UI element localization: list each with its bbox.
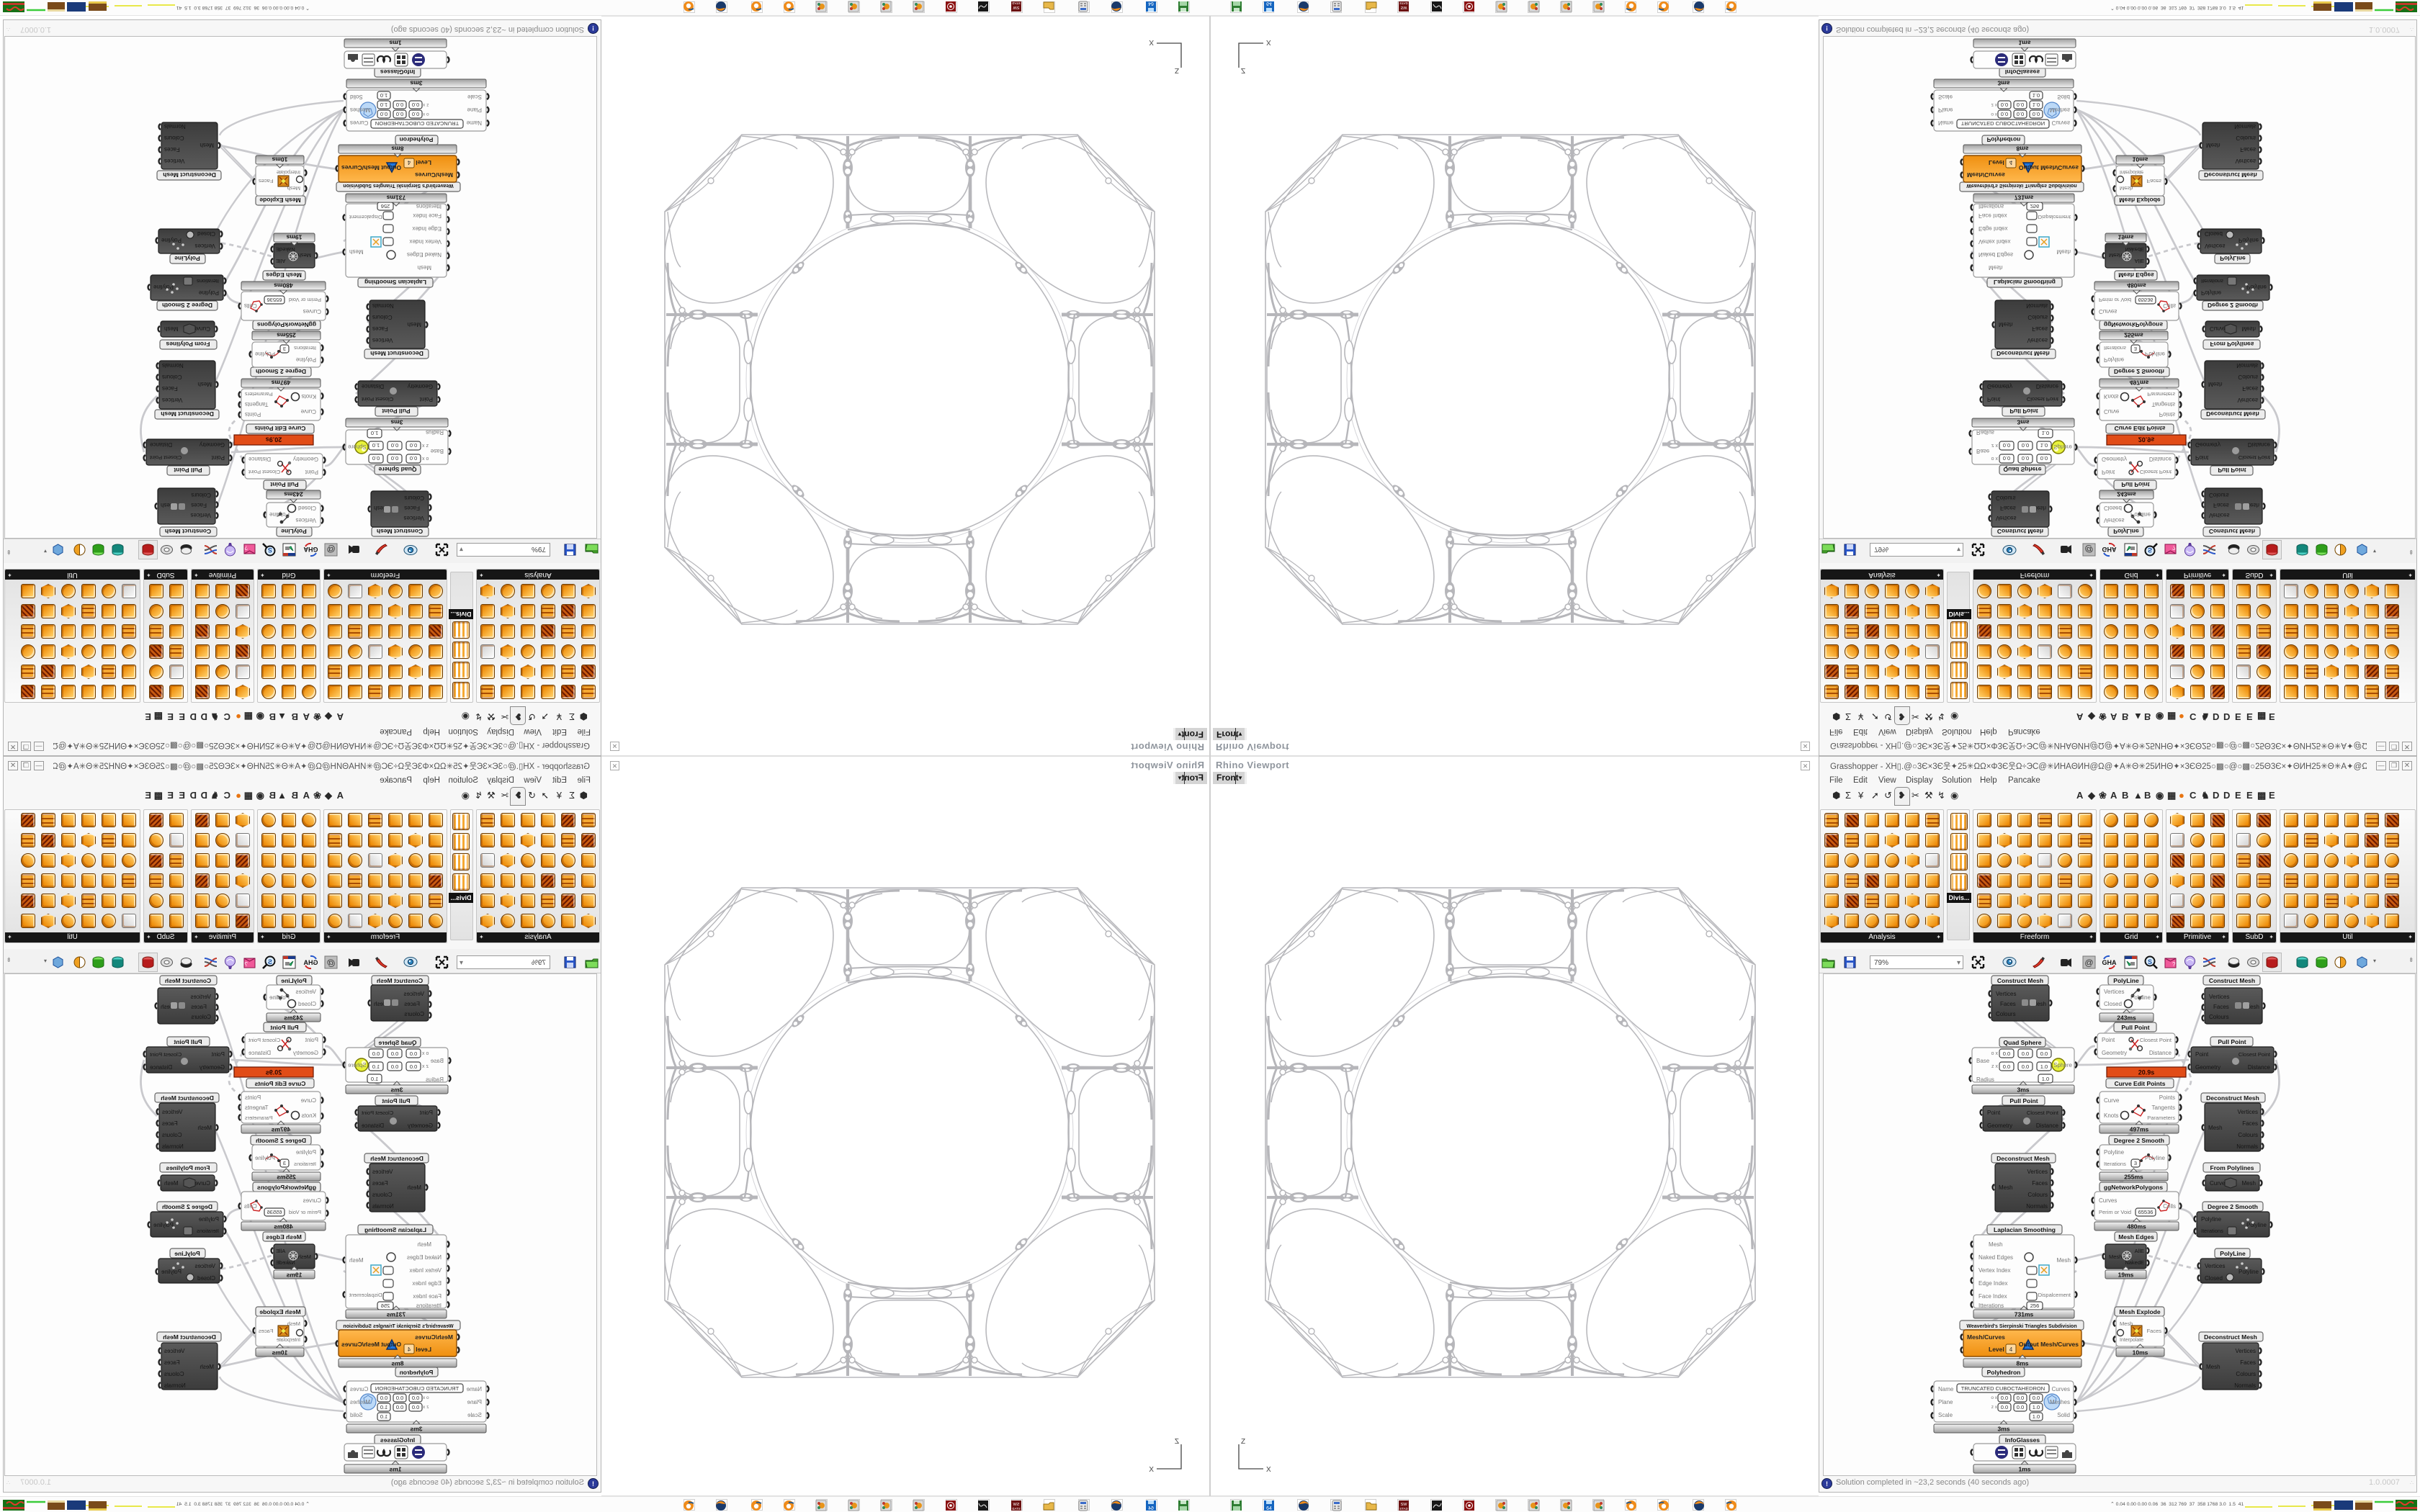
svg-text:Distance: Distance [361,1122,384,1129]
svg-text:Mesh/Curves: Mesh/Curves [415,1333,453,1341]
svg-text:0.0: 0.0 [412,102,419,108]
svg-text:4: 4 [407,1346,411,1353]
svg-text:Mesh: Mesh [2109,1254,2122,1260]
svg-text:Z: Z [1241,1438,1245,1446]
svg-text:Distance: Distance [361,383,384,390]
svg-text:@: @ [326,544,335,554]
svg-text:0.0: 0.0 [2003,1063,2010,1070]
svg-text:243ms: 243ms [284,491,303,498]
svg-text:Solid: Solid [2057,94,2070,100]
svg-text:Iterations: Iterations [2104,1161,2126,1167]
svg-text:Faces: Faces [2032,1180,2048,1187]
svg-text:Point: Point [419,1110,433,1116]
svg-text:Faces: Faces [2242,385,2258,392]
svg-text:NakedE: NakedE [276,246,295,253]
svg-text:Laplacian Smoothing: Laplacian Smoothing [1994,1226,2056,1233]
svg-text:Faces: Faces [2240,146,2256,153]
svg-text:!: ! [592,24,594,32]
svg-text:Mesh/Curves: Mesh/Curves [1967,171,2005,179]
svg-text:Colours: Colours [2209,492,2229,498]
svg-text:8ms: 8ms [2016,145,2028,153]
svg-text:Vertices: Vertices [2238,1109,2258,1115]
svg-text:Geometry: Geometry [1987,383,2012,390]
svg-text:256: 256 [2030,203,2040,210]
svg-text:Pull Point: Pull Point [270,1024,298,1031]
svg-text:Construct Mesh: Construct Mesh [2209,977,2255,984]
svg-text:Faces: Faces [2147,178,2162,184]
svg-text:8ms: 8ms [2016,1360,2028,1367]
svg-text:Dispalcement: Dispalcement [2038,214,2071,220]
svg-text:PolyLine: PolyLine [2113,528,2139,535]
svg-text:Vertices: Vertices [2209,512,2229,518]
svg-text:Construct Mesh: Construct Mesh [2209,528,2255,535]
svg-text:Normals: Normals [2026,302,2048,309]
svg-text:0.0: 0.0 [2001,1395,2008,1401]
svg-text:0.0: 0.0 [396,102,403,108]
svg-text:0.0: 0.0 [2001,111,2008,117]
svg-text:Distance: Distance [2149,456,2172,462]
svg-text:Naked Edges: Naked Edges [1978,251,2013,258]
svg-text:0.0: 0.0 [380,1395,387,1401]
svg-text:Geometry: Geometry [2102,1050,2127,1056]
svg-text:Polyline: Polyline [254,351,275,357]
svg-text:0.0: 0.0 [372,455,380,462]
svg-text:Pull Point: Pull Point [270,481,298,488]
svg-text:Curves: Curves [303,308,321,315]
svg-text:497ms: 497ms [271,1126,290,1133]
svg-text:Mesh: Mesh [1989,264,2003,271]
svg-text:Polyhedron: Polyhedron [400,136,434,143]
svg-text:Polyline: Polyline [2238,237,2259,243]
svg-text:z x: z x [422,1405,429,1410]
svg-text:Cells: Cells [244,302,257,309]
svg-text:Name: Name [466,120,482,126]
svg-text:Vertices: Vertices [2236,158,2256,164]
svg-text:0.0: 0.0 [391,442,398,449]
svg-text:Distance: Distance [248,1050,271,1056]
svg-text:Output Mesh/Curves: Output Mesh/Curves [341,1341,401,1348]
svg-text:Mesh: Mesh [164,1180,179,1187]
svg-text:Geometry: Geometry [293,456,318,462]
svg-text:Degree 2 Smooth: Degree 2 Smooth [162,302,212,309]
svg-text:20.9s: 20.9s [2138,436,2155,444]
svg-text:ggNetworkPolygons: ggNetworkPolygons [257,1184,316,1191]
svg-text:@: @ [2084,544,2093,554]
svg-text:Closed: Closed [2104,1001,2122,1007]
svg-text:Base: Base [1976,448,1990,454]
svg-text:Colours: Colours [164,135,184,141]
svg-text:Mesh: Mesh [298,252,311,258]
svg-text:1.0: 1.0 [380,1404,387,1410]
svg-text:0.0: 0.0 [2033,111,2040,117]
svg-text:64: 64 [1148,1,1154,6]
svg-text:Cells: Cells [2163,1203,2176,1210]
svg-text:Tangents: Tangents [245,1104,268,1111]
svg-text:Interpolate: Interpolate [277,1338,300,1343]
svg-text:1.0: 1.0 [2033,1404,2040,1410]
svg-text:Dispalcement: Dispalcement [349,1292,382,1298]
svg-text:Colours: Colours [162,374,182,380]
svg-text:Mesh: Mesh [1989,1241,2003,1248]
svg-text:Faces: Faces [162,385,178,392]
svg-text:Mesh: Mesh [349,1257,364,1264]
svg-text:3: 3 [2134,1160,2137,1166]
svg-text:!: ! [1826,1480,1828,1488]
svg-text:Faces: Faces [191,502,207,508]
svg-text:Construct Mesh: Construct Mesh [165,977,211,984]
svg-text:Polyline: Polyline [2130,511,2151,518]
svg-text:Mesh: Mesh [2206,142,2220,148]
svg-text:InfoGlasses: InfoGlasses [2005,1436,2040,1444]
svg-text:Polyhedron: Polyhedron [400,1369,434,1376]
svg-text:Closest Point: Closest Point [361,396,393,402]
svg-text:Mesh: Mesh [2241,1180,2256,1187]
svg-text:Pull Point: Pull Point [2121,481,2149,488]
svg-text:Curve: Curve [2104,408,2120,415]
svg-text:Laplacian Smoothing: Laplacian Smoothing [364,1226,426,1233]
svg-text:4: 4 [2009,159,2013,166]
svg-text:Colours: Colours [2238,1132,2258,1138]
svg-text:Normals: Normals [2236,1143,2258,1150]
svg-text:Closed: Closed [298,505,316,511]
svg-text:Deconstruct Mesh: Deconstruct Mesh [1996,1155,2050,1162]
svg-text:X: X [1149,1466,1154,1474]
svg-text:3: 3 [2134,346,2137,352]
svg-text:From Polylines: From Polylines [166,341,210,348]
svg-text:1ms: 1ms [389,40,401,47]
svg-text:Iterations: Iterations [2104,345,2126,351]
svg-text:Curves: Curves [2052,1386,2070,1392]
svg-text:z x: z x [422,102,429,107]
svg-text:Polyline: Polyline [2246,1222,2267,1228]
svg-text:Mesh Edges: Mesh Edges [2118,1233,2154,1241]
svg-text:STAD: STAD [1399,1,1408,5]
svg-text:Vertices: Vertices [2104,989,2124,995]
svg-text:S: S [268,958,272,966]
svg-text:Knots: Knots [302,1112,316,1119]
svg-text:Vertices: Vertices [1996,515,2016,521]
svg-text:From Polylines: From Polylines [166,1164,210,1171]
svg-text:Name: Name [1938,1386,1954,1392]
svg-text:Vertex Index: Vertex Index [410,238,442,245]
svg-text:Laplacian Smoothing: Laplacian Smoothing [1994,279,2056,286]
svg-text:Distance: Distance [2036,1122,2059,1129]
svg-text:Vertices: Vertices [191,512,211,518]
svg-text:Colours: Colours [1996,495,2016,501]
svg-text:Polyline: Polyline [2145,1155,2166,1161]
svg-text:Geometry: Geometry [408,1122,433,1129]
svg-text:Naked Edges: Naked Edges [407,1254,442,1261]
svg-text:Polyline: Polyline [2238,1269,2259,1275]
svg-text:Plane: Plane [467,107,482,113]
svg-text:Construct Mesh: Construct Mesh [1997,977,2043,984]
svg-text:Distance: Distance [2036,383,2059,390]
svg-text:Mesh: Mesh [2056,248,2071,255]
svg-text:0.0: 0.0 [412,1395,419,1401]
svg-text:Closed: Closed [197,230,215,237]
svg-text:?: ? [2172,544,2176,551]
svg-text:Construct Mesh: Construct Mesh [165,528,211,535]
svg-text:Polyline: Polyline [254,1155,275,1161]
svg-text:Perim or Void: Perim or Void [2099,1209,2131,1215]
svg-text:Pull Point: Pull Point [2009,408,2038,415]
svg-text:Output Mesh/Curves: Output Mesh/Curves [2019,164,2079,171]
svg-text:Vertices: Vertices [164,1348,184,1354]
svg-text:Mesh: Mesh [200,1364,214,1370]
svg-text:Face Index: Face Index [413,1293,442,1300]
svg-text:243ms: 243ms [2117,1014,2136,1022]
svg-text:Curve Edit Points: Curve Edit Points [254,1080,305,1087]
svg-text:Normals: Normals [2026,1203,2048,1210]
svg-text:Polyline: Polyline [2104,356,2125,363]
svg-text:Pull Point: Pull Point [174,467,202,474]
svg-text:1.0: 1.0 [2040,1063,2048,1070]
svg-text:Point: Point [305,1037,318,1043]
svg-text:Deconstruct Mesh: Deconstruct Mesh [2206,1094,2259,1102]
svg-text:0.0: 0.0 [2040,1050,2048,1057]
svg-text:Face Index: Face Index [1978,212,2007,219]
svg-text:0.0: 0.0 [410,1050,417,1057]
svg-text:Mesh: Mesh [2056,1257,2071,1264]
svg-text:Colours: Colours [191,1014,211,1020]
svg-text:o x: o x [1991,112,1997,117]
svg-text:Quad Sphere: Quad Sphere [378,466,416,473]
svg-text:Geometry: Geometry [2102,456,2127,462]
svg-text:Mesh: Mesh [200,142,214,148]
svg-text:Plane: Plane [1938,1399,1953,1405]
svg-text:Z: Z [1175,1438,1179,1446]
svg-text:Pull Point: Pull Point [2009,1097,2038,1104]
svg-text:o x: o x [422,112,429,117]
svg-text:Normals: Normals [2234,123,2256,130]
svg-text:0.0: 0.0 [2003,1050,2010,1057]
svg-text:Mesh: Mesh [197,381,212,387]
svg-text:Mesh: Mesh [407,1184,421,1191]
svg-text:3: 3 [283,346,286,352]
svg-text:Vertices: Vertices [2209,994,2229,1000]
svg-text:Vertices: Vertices [195,243,215,249]
svg-text:Colours: Colours [404,1011,424,1017]
svg-text:497ms: 497ms [271,379,290,387]
svg-text:Iterations: Iterations [197,278,219,284]
svg-text:19ms: 19ms [286,234,302,241]
svg-text:Solid: Solid [2057,1412,2070,1418]
svg-text:Deconstruct Mesh: Deconstruct Mesh [370,350,423,357]
svg-text:Vertices: Vertices [1996,991,2016,997]
svg-text:0.0: 0.0 [2001,1404,2008,1410]
svg-text:0.0: 0.0 [412,1404,419,1410]
svg-text:0.0: 0.0 [2017,1395,2024,1401]
svg-text:Tangents: Tangents [2152,401,2175,408]
svg-text:z x: z x [422,443,429,448]
svg-text:S: S [268,546,272,554]
svg-text:Colours: Colours [372,314,393,320]
svg-text:ggNetworkPolygons: ggNetworkPolygons [2104,1184,2163,1191]
svg-text:PolyLine: PolyLine [2220,1250,2246,1257]
svg-text:Itterations: Itterations [1978,1302,2004,1309]
svg-text:Interpolate: Interpolate [277,169,300,174]
svg-text:Point: Point [305,469,318,475]
svg-text:Colours: Colours [162,1132,182,1138]
svg-text:Itterations: Itterations [1978,203,2004,210]
svg-text:Parameters: Parameters [245,391,273,397]
svg-text:1.0: 1.0 [371,430,378,436]
svg-text:0.0: 0.0 [2017,111,2024,117]
svg-text:Mesh: Mesh [298,1254,311,1260]
svg-text:Curve Edit Points: Curve Edit Points [254,425,305,432]
svg-text:Scale: Scale [1938,94,1953,100]
svg-text:Edge Index: Edge Index [413,1280,442,1287]
svg-text:Output Mesh/Curves: Output Mesh/Curves [341,164,401,171]
svg-text:Colours: Colours [1996,1011,2016,1017]
svg-text:Mesh: Mesh [417,1241,431,1248]
svg-text:Closed: Closed [2205,1275,2223,1282]
svg-text:o x: o x [1991,456,1999,461]
svg-text:Deconstruct Mesh: Deconstruct Mesh [2204,1333,2257,1341]
svg-text:Z: Z [1241,66,1245,74]
svg-text:Itterations: Itterations [416,1302,442,1309]
svg-text:19ms: 19ms [286,1272,302,1279]
svg-text:Geometry: Geometry [408,383,433,390]
svg-text:Deconstruct Mesh: Deconstruct Mesh [161,410,214,418]
svg-text:255ms: 255ms [2124,332,2143,339]
svg-text:Polyhedron: Polyhedron [1987,136,2021,143]
svg-text:Face Index: Face Index [413,212,442,219]
svg-text:@: @ [326,958,335,968]
svg-text:0.0: 0.0 [2017,102,2024,108]
svg-text:Iterations: Iterations [197,1228,219,1234]
svg-text:Degree 2 Smooth: Degree 2 Smooth [2208,302,2258,309]
svg-text:o x: o x [1991,1395,1997,1400]
svg-text:Colours: Colours [2238,374,2258,380]
svg-text:Faces: Faces [2242,1120,2258,1127]
svg-text:256: 256 [381,1302,390,1309]
svg-text:GHA: GHA [303,546,318,553]
svg-text:Curve Edit Points: Curve Edit Points [2115,425,2166,432]
svg-text:Curve: Curve [300,1097,316,1104]
svg-text:Faces: Faces [259,1328,274,1334]
svg-text:1.0: 1.0 [371,1076,378,1082]
svg-text:PolyLine: PolyLine [2113,977,2139,984]
svg-text:Level: Level [1989,159,2004,166]
svg-text:0.0: 0.0 [2017,1404,2024,1410]
svg-text:Quad Sphere: Quad Sphere [2004,466,2042,473]
svg-text:Point: Point [419,396,433,402]
svg-text:STAD: STAD [1399,1507,1408,1511]
svg-text:Deconstruct Mesh: Deconstruct Mesh [161,1094,214,1102]
svg-text:Curves: Curves [350,1386,368,1392]
svg-text:Vertex Index: Vertex Index [1978,238,2010,245]
svg-text:Knots: Knots [2104,1112,2118,1119]
svg-text:20.9s: 20.9s [266,436,282,444]
svg-text:Edge Index: Edge Index [413,225,442,232]
svg-text:Colours: Colours [2209,1014,2229,1020]
svg-text:Polyline: Polyline [2130,994,2151,1001]
svg-text:NakedE: NakedE [2125,246,2144,253]
svg-text:Weaverbird's Sierpinski Triang: Weaverbird's Sierpinski Triangles Subdiv… [343,1324,453,1329]
svg-text:?: ? [244,961,248,968]
svg-text:Curves: Curves [303,1197,321,1204]
svg-text:Faces: Faces [162,1120,178,1127]
svg-text:Deconstruct Mesh: Deconstruct Mesh [2206,410,2259,418]
svg-text:SW: SW [1401,5,1408,9]
svg-text:Faces: Faces [2213,1004,2229,1010]
svg-text:0.0: 0.0 [2040,455,2048,462]
svg-text:Edge Index: Edge Index [1978,225,2007,232]
svg-text:3ms: 3ms [410,80,422,87]
svg-text:Deconstruct Mesh: Deconstruct Mesh [163,1333,216,1341]
svg-text:PolyLine: PolyLine [281,528,307,535]
svg-text:Faces: Faces [2213,502,2229,508]
svg-text:Tangents: Tangents [245,401,268,408]
svg-text:Pull Point: Pull Point [2218,1038,2246,1045]
svg-text:20.9s: 20.9s [266,1069,282,1076]
svg-text:Base: Base [430,448,444,454]
svg-text:Sphere: Sphere [347,444,366,450]
svg-text:InfoGlasses: InfoGlasses [380,1436,415,1444]
svg-text:Polyline: Polyline [2201,289,2222,296]
svg-text:Iterations: Iterations [294,345,316,351]
svg-text:1.0: 1.0 [2033,1413,2040,1420]
svg-text:Vertices: Vertices [2205,243,2225,249]
svg-text:0.0: 0.0 [396,1404,403,1410]
svg-text:Faces: Faces [2000,505,2016,511]
svg-text:Parameters: Parameters [2147,1115,2175,1121]
svg-text:Pull Point: Pull Point [174,1038,202,1045]
svg-text:Radius: Radius [1976,429,1994,436]
svg-text:TRUNCATED CUBOCTAHEDRON: TRUNCATED CUBOCTAHEDRON [375,120,459,127]
svg-text:256: 256 [381,203,390,210]
svg-text:Curves: Curves [2052,120,2070,126]
svg-text:o x: o x [422,1051,429,1056]
svg-text:1.0: 1.0 [2033,92,2040,99]
svg-text:3ms: 3ms [2017,1086,2029,1094]
svg-text:Base: Base [1976,1058,1990,1064]
svg-text:Vertices: Vertices [404,515,424,521]
svg-text:Closed: Closed [197,1275,215,1282]
svg-text:1ms: 1ms [2018,40,2030,47]
svg-text:1.0: 1.0 [2042,1076,2049,1082]
svg-text:65536: 65536 [267,1209,282,1215]
svg-text:Polyline: Polyline [161,1269,181,1275]
svg-text:Level: Level [416,159,431,166]
svg-text:Polyline: Polyline [198,1216,219,1223]
svg-text:Point: Point [1987,1110,2001,1116]
svg-text:Deconstruct Mesh: Deconstruct Mesh [370,1155,423,1162]
svg-text:Distance: Distance [149,441,172,448]
svg-text:Mesh: Mesh [2241,325,2256,332]
svg-text:Perim or Void: Perim or Void [289,297,321,303]
svg-text:8ms: 8ms [391,145,403,153]
svg-text:Parameters: Parameters [2147,391,2175,397]
svg-text:Deconstruct Mesh: Deconstruct Mesh [1996,350,2050,357]
svg-text:ggNetworkPolygons: ggNetworkPolygons [2104,321,2163,328]
svg-text:Vertices: Vertices [2205,1263,2225,1269]
svg-text:1ms: 1ms [2018,1466,2030,1473]
svg-text:3ms: 3ms [1997,80,2009,87]
svg-text:243ms: 243ms [284,1014,303,1022]
svg-text:0.0: 0.0 [2003,442,2010,449]
svg-text:255ms: 255ms [277,332,296,339]
svg-text:!: ! [1826,24,1828,32]
svg-text:3ms: 3ms [410,1426,422,1433]
svg-text:Perim or Void: Perim or Void [2099,297,2131,303]
svg-text:Degree 2 Smooth: Degree 2 Smooth [2208,1203,2258,1210]
svg-text:Edge Index: Edge Index [1978,1280,2007,1287]
svg-text:Sphere: Sphere [347,1062,366,1068]
svg-text:Normals: Normals [164,123,186,130]
svg-text:Mesh: Mesh [197,1125,212,1131]
